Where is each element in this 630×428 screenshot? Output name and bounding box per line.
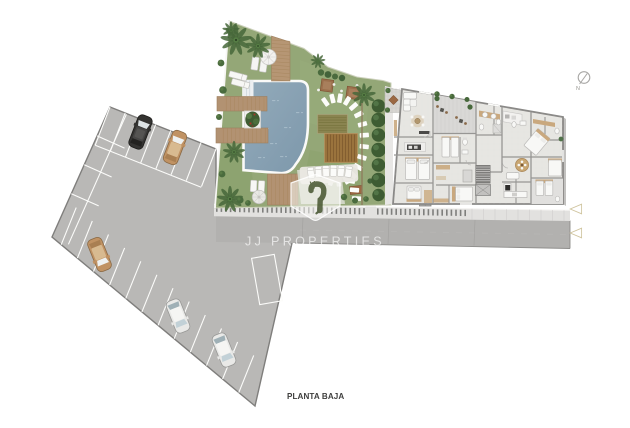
svg-text:PLANTA BAJA: PLANTA BAJA <box>287 392 344 401</box>
svg-text:N: N <box>576 86 580 92</box>
svg-text:JJ PROPERTIES: JJ PROPERTIES <box>245 235 385 249</box>
